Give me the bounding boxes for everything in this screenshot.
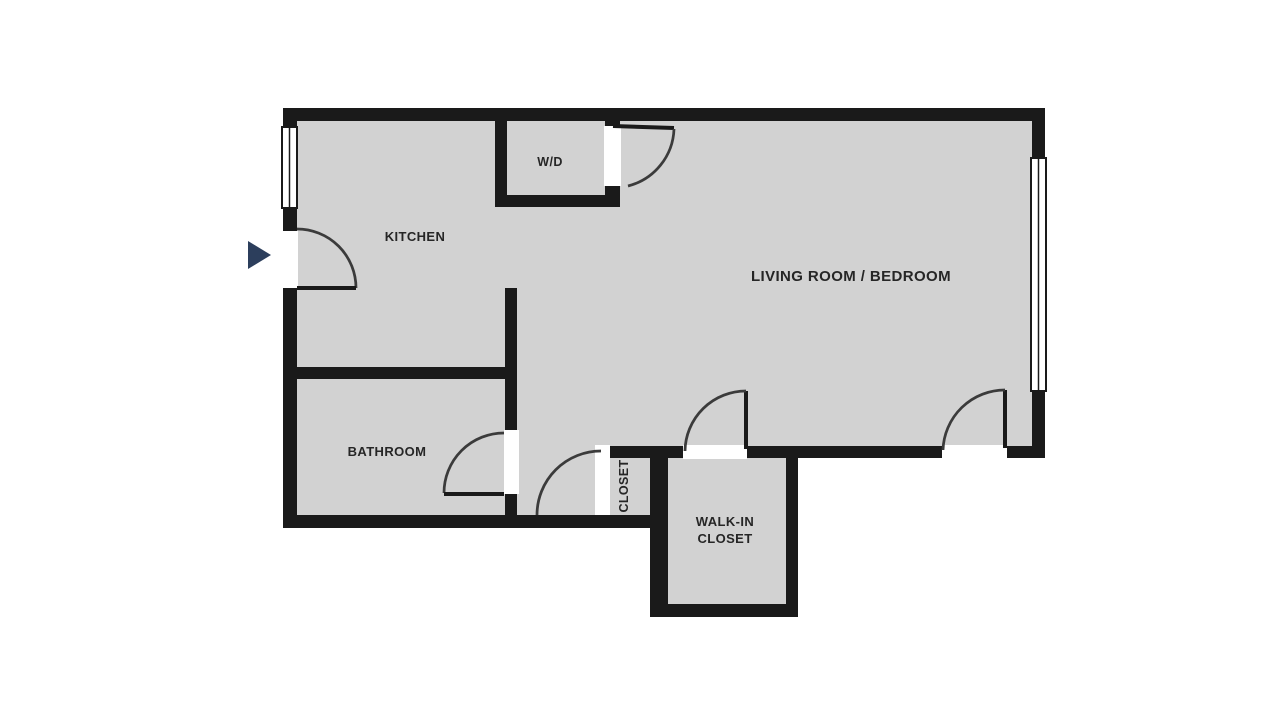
wd-label: W/D bbox=[537, 155, 563, 169]
left-wall-stub bbox=[283, 206, 297, 232]
entry-opening bbox=[281, 231, 298, 288]
walkin-closet-label-line1: WALK-IN bbox=[696, 514, 754, 529]
closet-label: CLOSET bbox=[617, 459, 631, 512]
floor-plan-page: KITCHEN W/D LIVING ROOM / BEDROOM BATHRO… bbox=[0, 0, 1280, 720]
closet-door-opening bbox=[595, 445, 610, 515]
wd-bottom-wall bbox=[495, 195, 620, 207]
kitchen-label: KITCHEN bbox=[385, 229, 446, 244]
entry-arrow-icon bbox=[248, 241, 271, 269]
walkin-closet-label-line2: CLOSET bbox=[697, 531, 752, 546]
wd-right-wall-stub-bottom bbox=[605, 186, 620, 207]
walkin-door-opening bbox=[683, 445, 747, 459]
bathroom-door-opening bbox=[504, 430, 519, 494]
wd-door-opening bbox=[604, 126, 621, 186]
left-wall-top bbox=[283, 108, 297, 129]
closet-walkin-divider-wall bbox=[650, 446, 668, 617]
right-wall-top bbox=[1032, 108, 1045, 160]
top-wall bbox=[283, 108, 1045, 121]
right-window bbox=[1031, 158, 1046, 391]
wd-door-leaf bbox=[613, 126, 674, 128]
walkin-right-wall bbox=[786, 446, 798, 617]
left-wall-lower bbox=[283, 288, 297, 528]
bathroom-hall-floor-area bbox=[290, 440, 595, 521]
walkin-bottom-wall bbox=[650, 604, 798, 617]
bathroom-label: BATHROOM bbox=[348, 444, 427, 459]
bottom-wall-left bbox=[283, 515, 668, 528]
floor-plan: KITCHEN W/D LIVING ROOM / BEDROOM BATHRO… bbox=[0, 0, 1280, 720]
living-room-door-opening bbox=[942, 445, 1007, 459]
wd-left-wall bbox=[495, 114, 507, 205]
living-room-label: LIVING ROOM / BEDROOM bbox=[751, 268, 951, 285]
bathroom-top-wall bbox=[296, 367, 505, 379]
left-window bbox=[282, 127, 297, 208]
